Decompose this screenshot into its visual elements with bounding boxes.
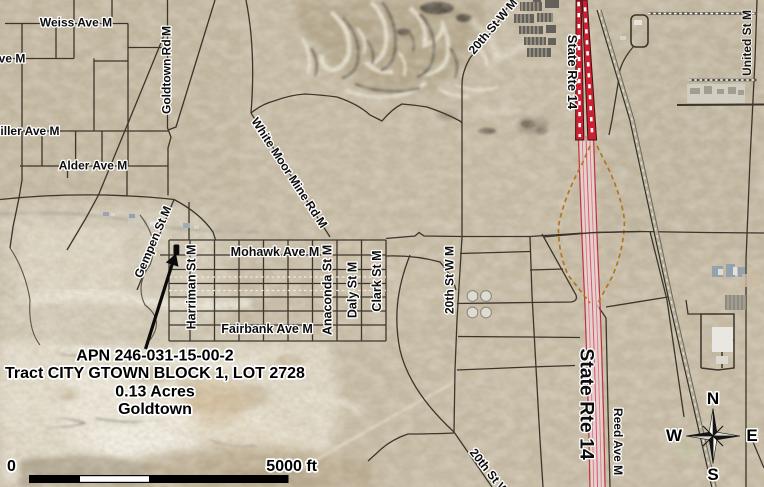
svg-text:ve M: ve M [0,52,25,66]
svg-text:iller Ave M: iller Ave M [0,124,59,138]
svg-text:State Rte 14: State Rte 14 [565,35,580,110]
svg-text:Goldtown Rd M: Goldtown Rd M [160,26,174,114]
svg-text:S: S [707,465,718,484]
svg-text:Weiss Ave M: Weiss Ave M [40,16,112,30]
svg-text:W: W [666,426,683,445]
svg-text:0.13 Acres: 0.13 Acres [115,384,195,401]
svg-text:APN 246-031-15-00-2: APN 246-031-15-00-2 [76,348,234,365]
svg-text:E: E [746,426,757,445]
svg-text:Daly St M: Daly St M [346,262,360,318]
svg-text:20th St W M: 20th St W M [443,246,457,314]
svg-text:State Rte 14: State Rte 14 [576,348,598,460]
svg-text:Mohawk Ave M: Mohawk Ave M [231,245,320,259]
svg-text:N: N [707,389,719,408]
svg-text:Harriman St M: Harriman St M [185,245,199,330]
svg-text:Reed Ave M: Reed Ave M [611,408,625,475]
svg-text:Goldtown: Goldtown [118,401,192,418]
svg-text:United St M: United St M [740,10,754,76]
svg-text:Alder Ave M: Alder Ave M [59,159,127,173]
svg-text:Clark St M: Clark St M [370,250,384,311]
svg-text:0: 0 [7,458,16,475]
svg-text:5000 ft: 5000 ft [266,458,317,475]
svg-text:Anaconda St M: Anaconda St M [321,245,335,335]
svg-text:Tract CITY GTOWN BLOCK 1, LOT: Tract CITY GTOWN BLOCK 1, LOT 2728 [5,365,305,382]
svg-text:Fairbank Ave M: Fairbank Ave M [221,322,312,336]
